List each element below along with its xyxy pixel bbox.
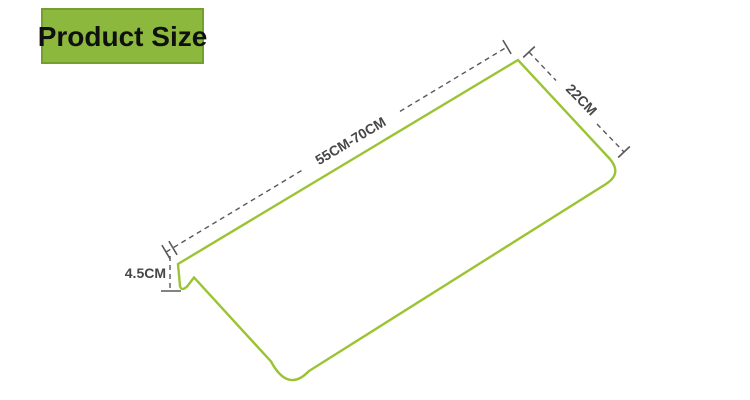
diagram-svg: Product Size 55CM-70CM 22CM 4.5CM xyxy=(0,0,750,400)
product-size-diagram: Product Size 55CM-70CM 22CM 4.5CM xyxy=(0,0,750,400)
length-dimension-tick-start-2 xyxy=(169,241,177,255)
badge-label: Product Size xyxy=(38,21,208,52)
length-dimension-tick-start-1 xyxy=(162,245,170,259)
height-dimension-label: 4.5CM xyxy=(125,265,166,281)
depth-dimension: 22CM xyxy=(523,47,630,158)
length-dimension-line-right xyxy=(400,47,507,111)
product-outline xyxy=(178,60,615,380)
height-dimension: 4.5CM xyxy=(125,256,181,291)
depth-dimension-tick-end xyxy=(618,147,630,158)
depth-dimension-tick-start xyxy=(523,47,535,58)
length-dimension-tick-end xyxy=(503,40,511,54)
product-size-badge: Product Size xyxy=(38,9,208,63)
length-dimension: 55CM-70CM xyxy=(162,40,511,259)
length-dimension-line-left xyxy=(166,170,302,252)
